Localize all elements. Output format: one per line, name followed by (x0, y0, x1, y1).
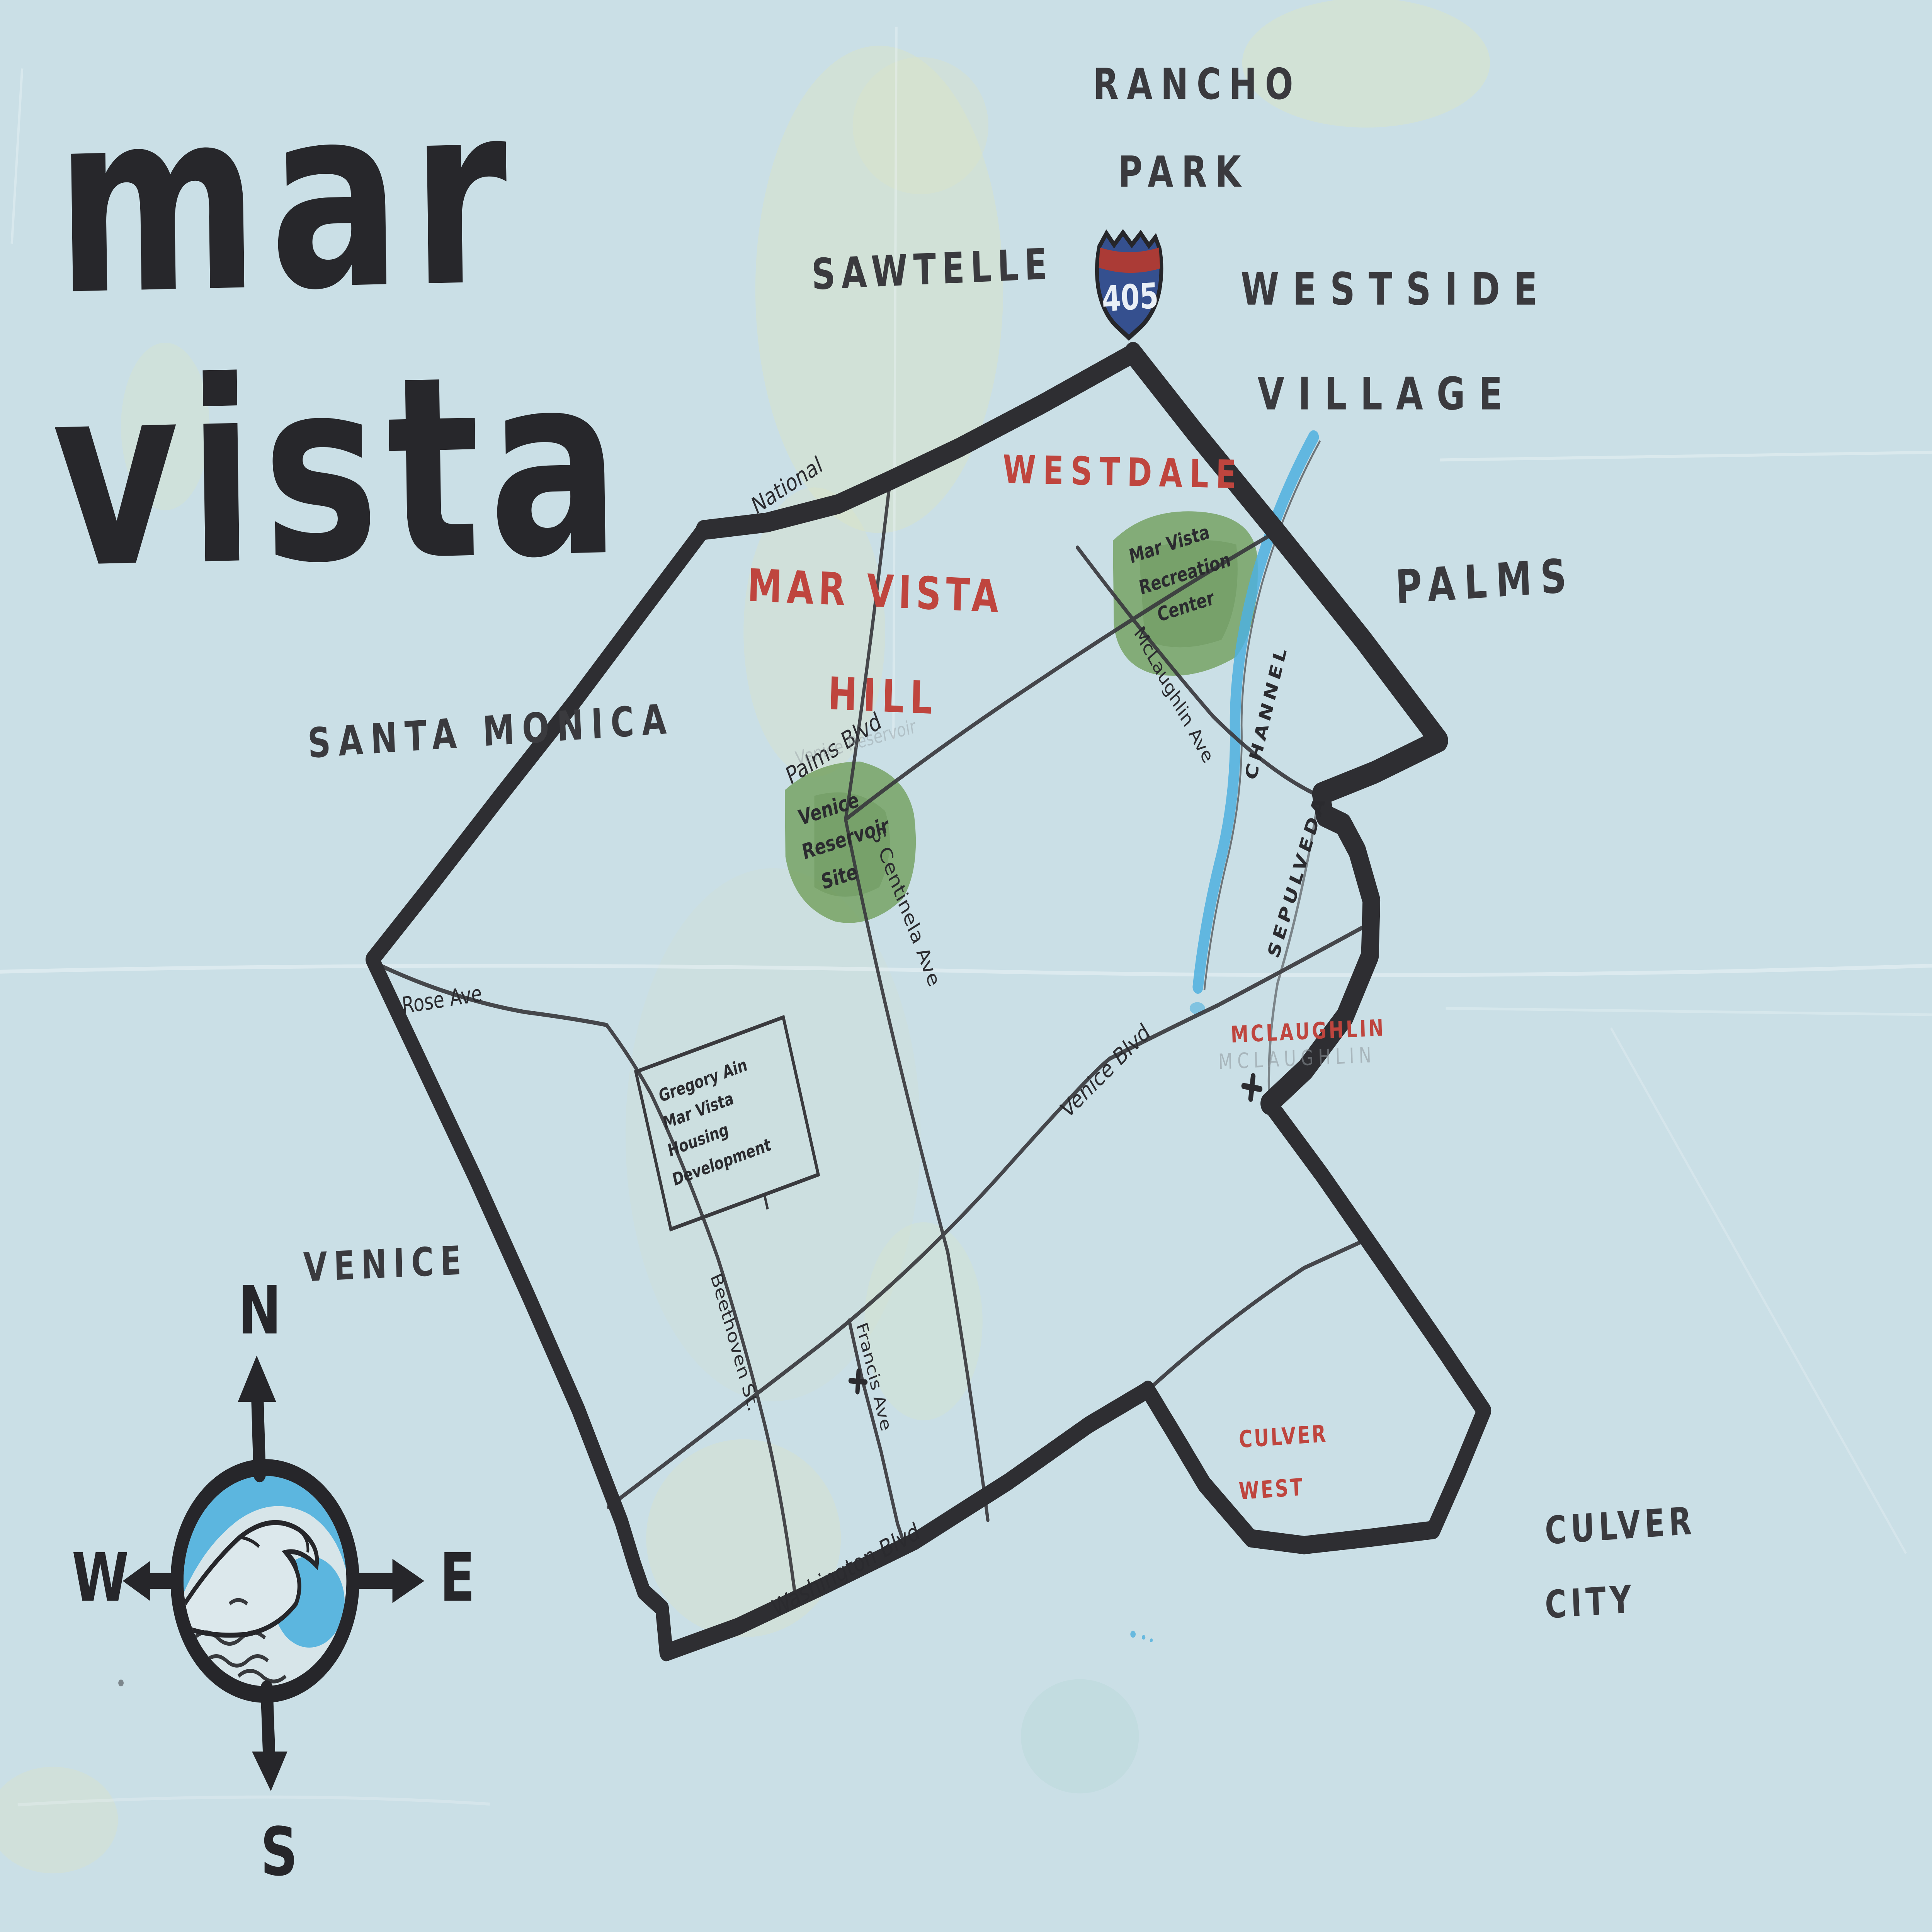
title-line-1: mar (54, 48, 520, 351)
label-westside-village-2: VILLAGE (1257, 367, 1516, 420)
ink-speck (118, 1680, 124, 1687)
title-line-2: vista (51, 319, 630, 624)
mar-vista-hand-drawn-map: Gregory Ain Mar Vista Housing Developmen… (0, 0, 1932, 1932)
compass-west-label: W (72, 1539, 129, 1617)
label-westside-village-1: WESTSIDE (1241, 263, 1551, 315)
label-culver-city-2: CITY (1544, 1577, 1636, 1628)
compass-east-label: E (440, 1539, 475, 1617)
label-rancho-park-2: PARK (1118, 147, 1249, 197)
shield-route-number: 405 (1101, 276, 1160, 320)
compass-south-label: S (260, 1813, 298, 1891)
label-westdale: WESTDALE (1002, 447, 1243, 498)
label-mar-vista-hill-2: HILL (827, 667, 939, 724)
compass-north-label: N (238, 1272, 281, 1349)
label-venice: VENICE (303, 1237, 468, 1291)
label-rancho-park-1: RANCHO (1093, 60, 1301, 109)
label-culver-west-2: WEST (1238, 1473, 1305, 1505)
